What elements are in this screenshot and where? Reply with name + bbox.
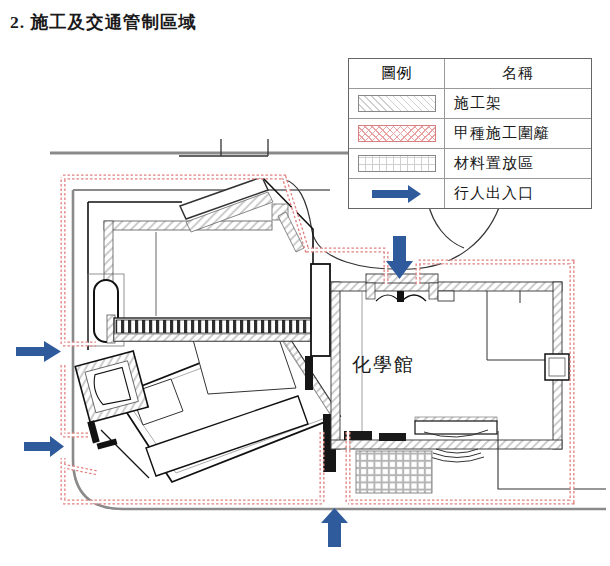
legend-header-name: 名稱: [445, 59, 591, 88]
entrance-arrow-south: [321, 508, 348, 547]
page: 2. 施工及交通管制區域: [0, 0, 610, 566]
legend-row-fence: 甲種施工圍籬: [349, 118, 591, 148]
entry-steps: [430, 449, 484, 462]
fence-crosshatch-swatch: [358, 125, 436, 142]
covered-walkway: [107, 315, 320, 343]
material-grid-swatch: [358, 155, 436, 172]
scaffold-hatch-swatch: [358, 95, 436, 112]
material-storage-area: [356, 451, 432, 493]
legend-row-entrance: 行人出入口: [349, 178, 591, 208]
legend-header-row: 圖例 名稱: [349, 59, 591, 88]
legend-table: 圖例 名稱 施工架 甲種施工圍籬 材料置放區 行人出入口: [348, 58, 592, 209]
tilted-building-cluster: [75, 330, 340, 482]
building-label: 化學館: [352, 354, 415, 375]
south-porch: [415, 421, 497, 434]
entrance-arrow-west-lower: [24, 436, 64, 457]
pedestrian-arrow-icon: [372, 190, 408, 198]
legend-header-symbol: 圖例: [349, 59, 445, 88]
legend-row-material: 材料置放區: [349, 148, 591, 178]
chemistry-building: 化學館: [331, 274, 606, 493]
legend-row-scaffold: 施工架: [349, 88, 591, 118]
entrance-arrow-west-upper: [16, 341, 61, 362]
entrance-arrow-north: [386, 236, 413, 279]
